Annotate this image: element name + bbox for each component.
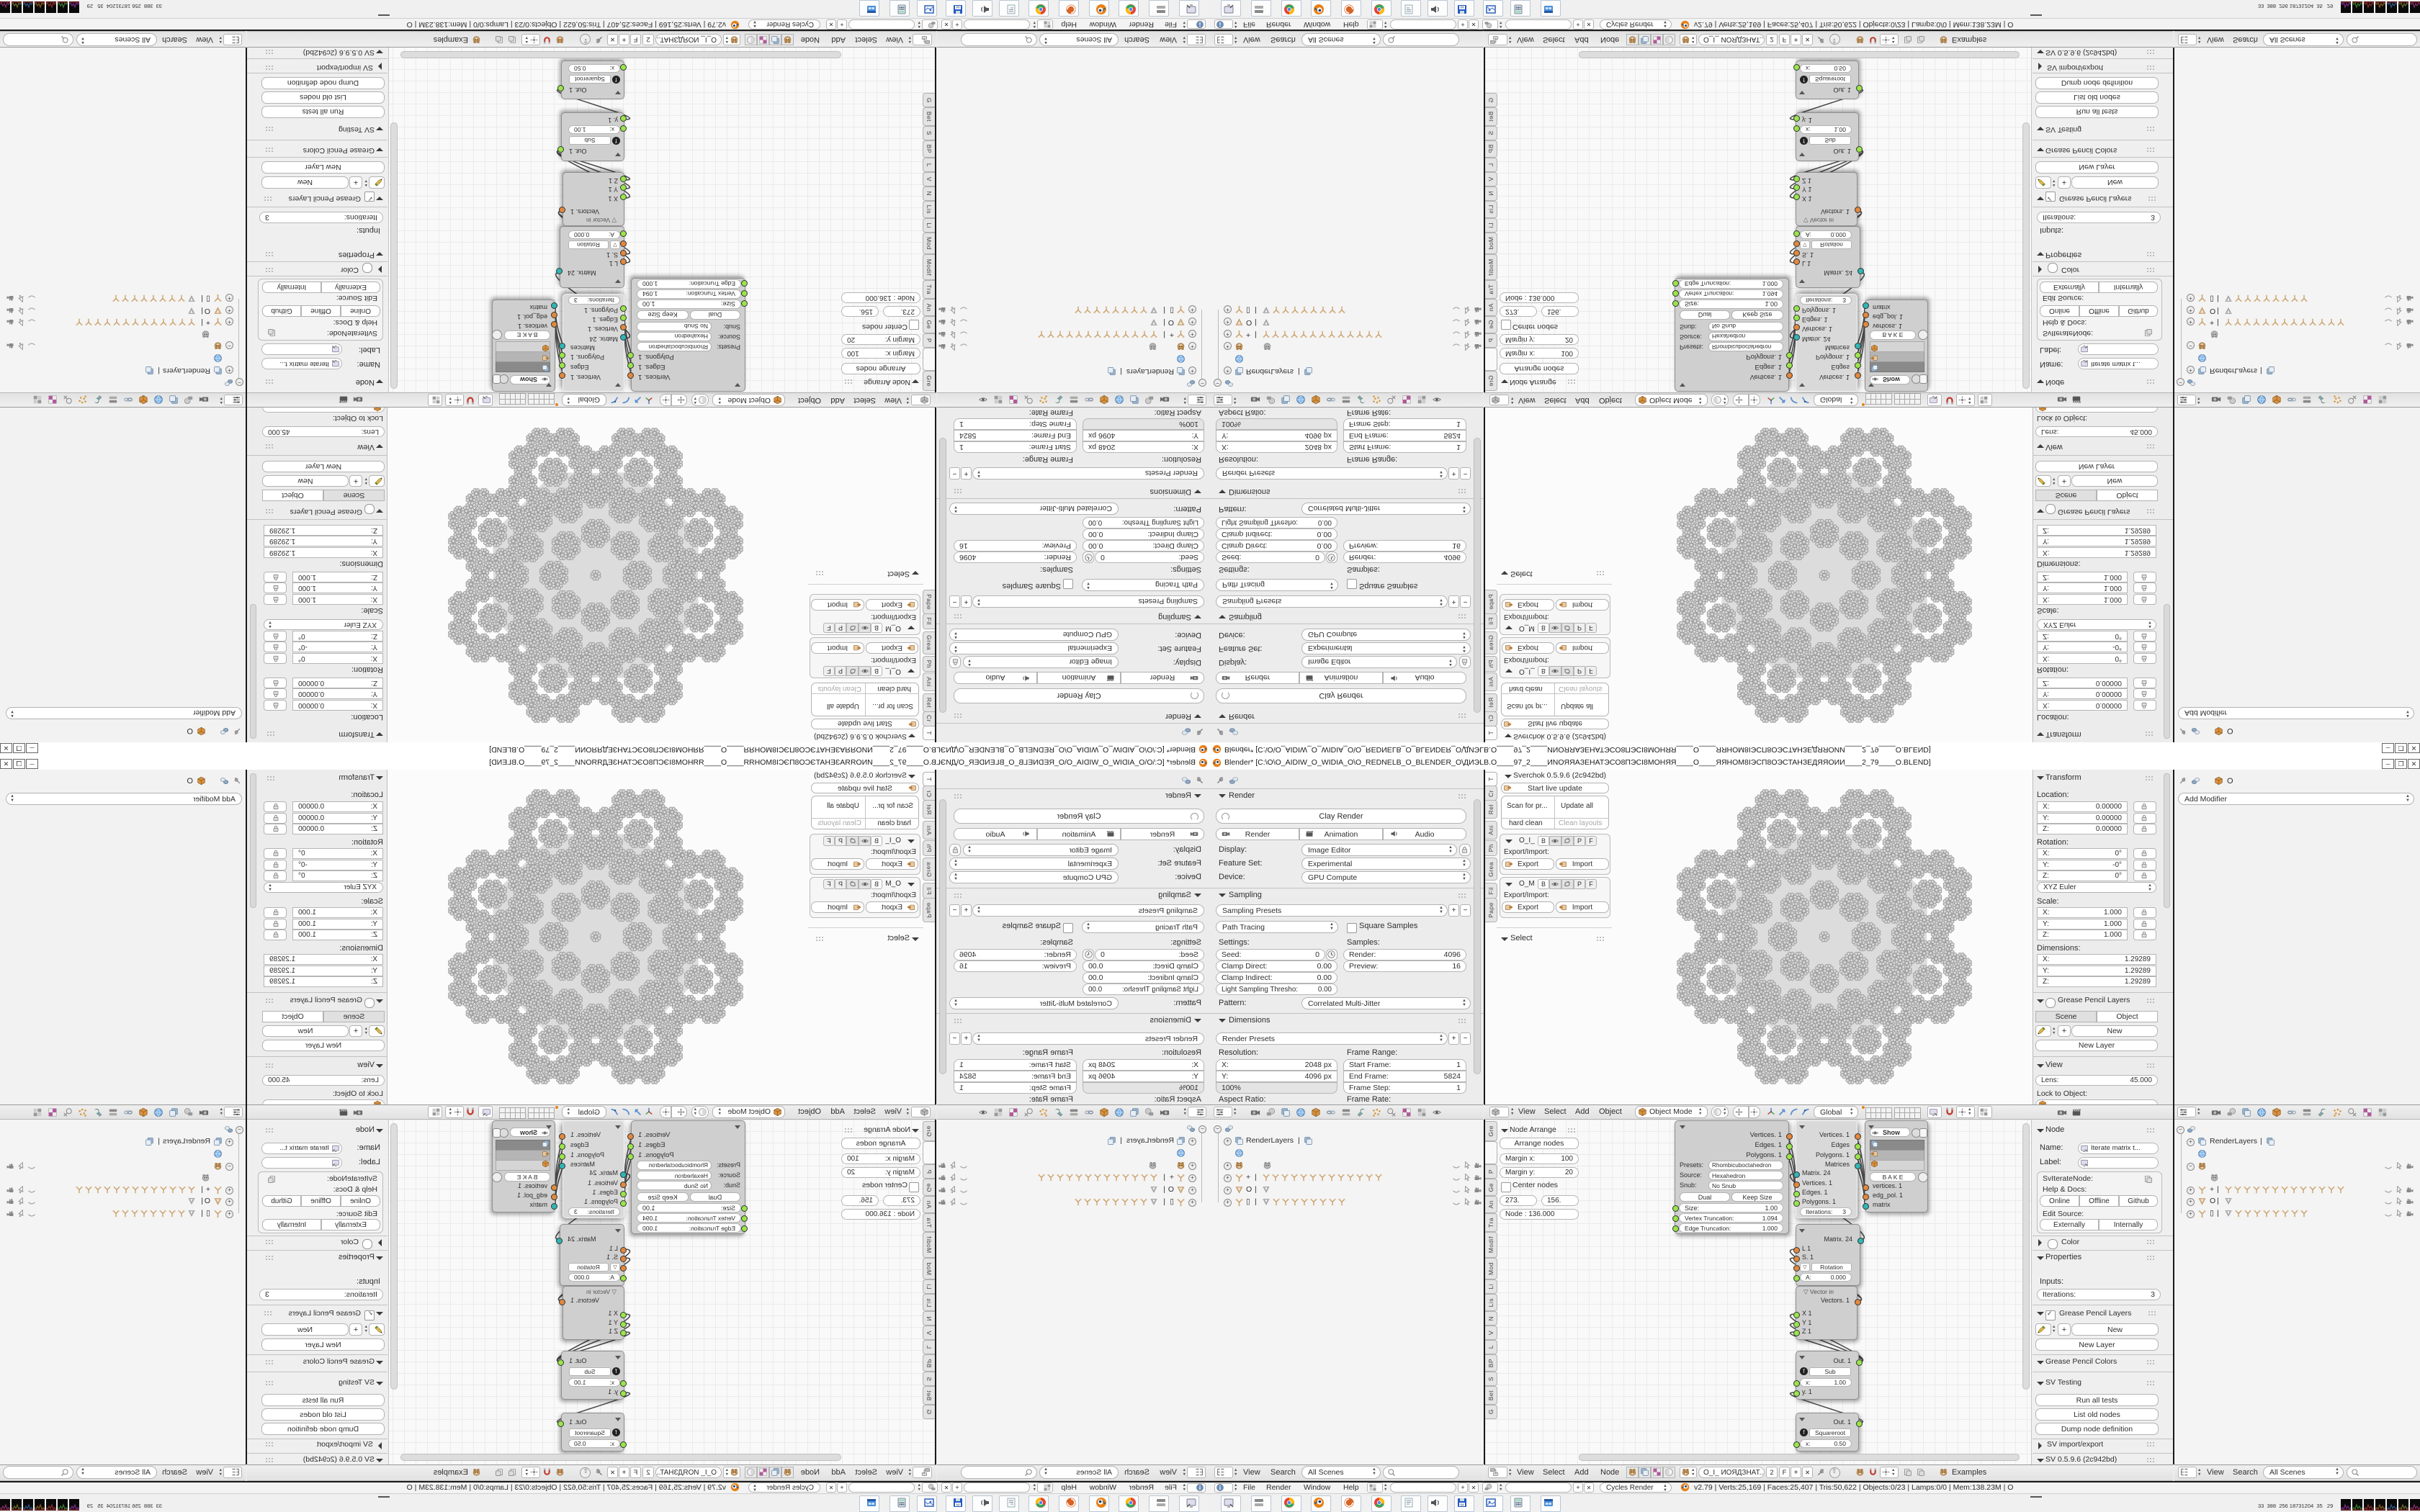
svg-text:64: 64 xyxy=(1460,1503,1464,1506)
svg-text:64: 64 xyxy=(956,6,960,9)
svg-text:64: 64 xyxy=(956,1503,960,1506)
svg-text:64: 64 xyxy=(1460,6,1464,9)
